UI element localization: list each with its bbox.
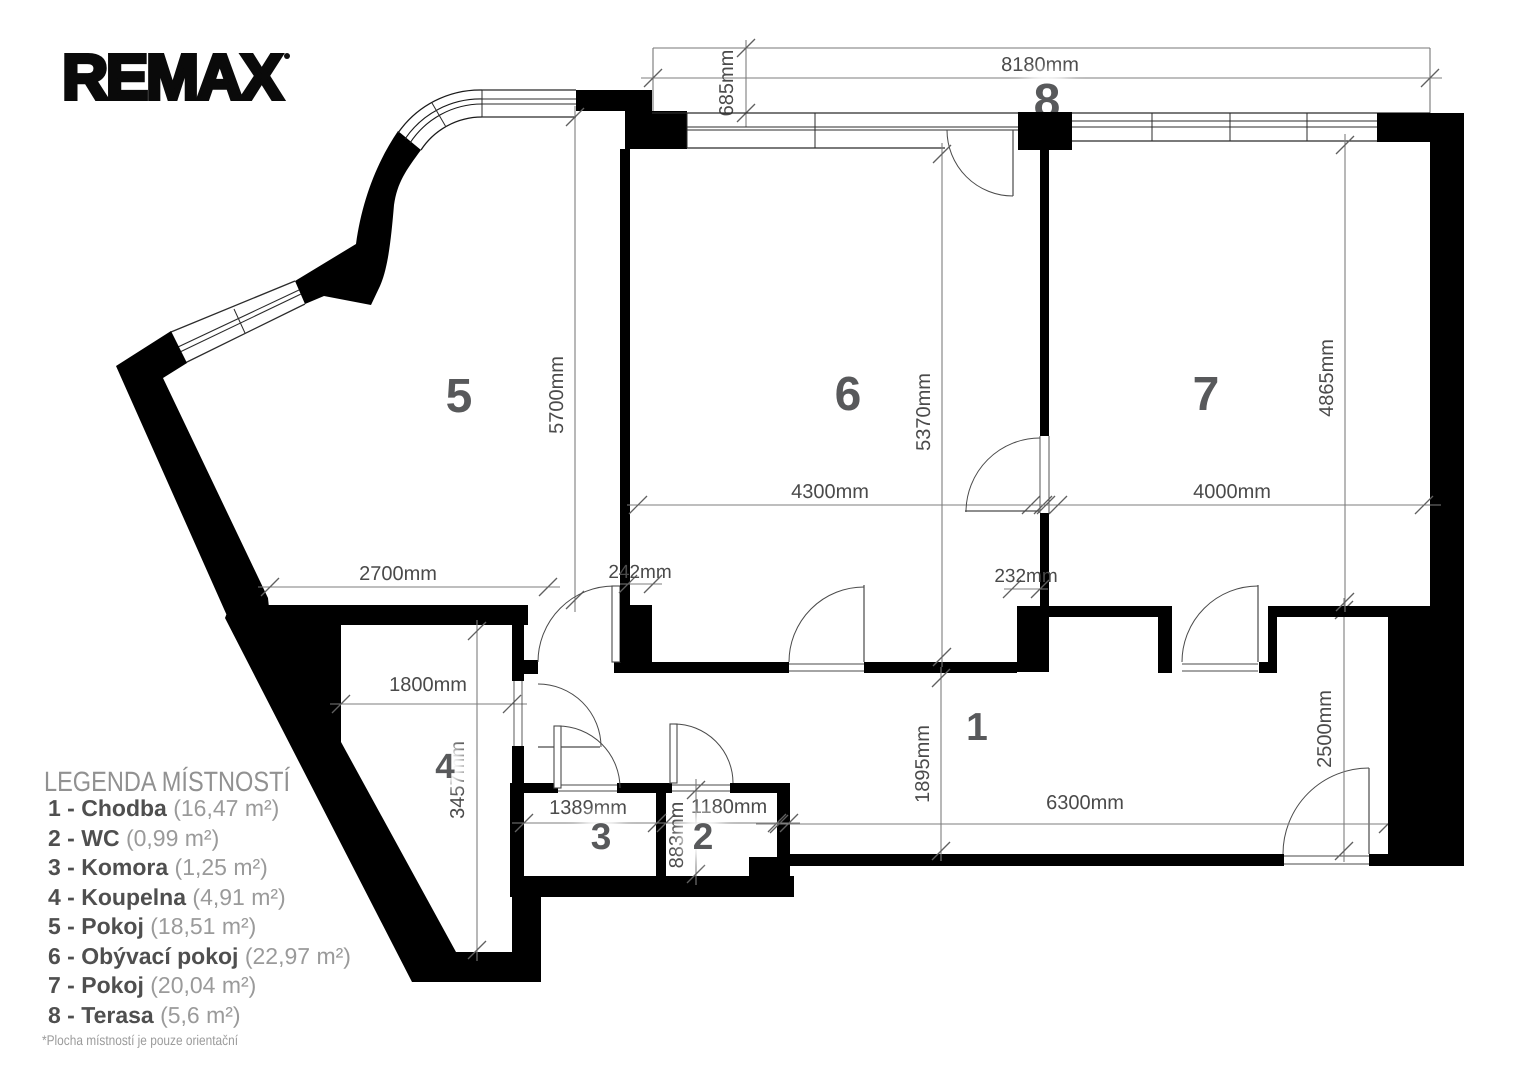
svg-text:4000mm: 4000mm bbox=[1193, 481, 1271, 503]
svg-text:3: 3 bbox=[591, 816, 612, 857]
svg-text:2 - WC (0,99 m²): 2 - WC (0,99 m²) bbox=[48, 825, 219, 851]
svg-text:LEGENDA MÍSTNOSTÍ: LEGENDA MÍSTNOSTÍ bbox=[44, 766, 290, 797]
svg-text:REMAX: REMAX bbox=[62, 41, 283, 113]
svg-text:6: 6 bbox=[835, 368, 862, 421]
svg-text:2: 2 bbox=[693, 816, 714, 857]
svg-text:4300mm: 4300mm bbox=[791, 481, 869, 503]
svg-text:6 - Obývací pokoj (22,97 m²): 6 - Obývací pokoj (22,97 m²) bbox=[48, 943, 351, 969]
svg-text:1895mm: 1895mm bbox=[912, 725, 934, 803]
svg-text:4 - Koupelna (4,91 m²): 4 - Koupelna (4,91 m²) bbox=[48, 884, 286, 910]
svg-text:2700mm: 2700mm bbox=[359, 563, 437, 585]
svg-text:1: 1 bbox=[966, 706, 988, 749]
svg-text:4: 4 bbox=[435, 747, 455, 786]
svg-text:*Plocha místností je pouze ori: *Plocha místností je pouze orientační bbox=[42, 1032, 238, 1048]
svg-text:5370mm: 5370mm bbox=[913, 373, 935, 451]
svg-text:1389mm: 1389mm bbox=[549, 797, 627, 819]
svg-text:7: 7 bbox=[1193, 368, 1220, 421]
svg-text:8 - Terasa (5,6 m²): 8 - Terasa (5,6 m²) bbox=[48, 1002, 241, 1028]
svg-text:4865mm: 4865mm bbox=[1316, 339, 1338, 417]
svg-text:7 - Pokoj (20,04 m²): 7 - Pokoj (20,04 m²) bbox=[48, 972, 256, 998]
svg-text:5: 5 bbox=[446, 370, 473, 423]
svg-text:232mm: 232mm bbox=[994, 566, 1057, 587]
svg-text:1 - Chodba (16,47 m²): 1 - Chodba (16,47 m²) bbox=[48, 795, 279, 821]
svg-text:6300mm: 6300mm bbox=[1046, 792, 1124, 814]
svg-text:5700mm: 5700mm bbox=[546, 356, 568, 434]
svg-text:2500mm: 2500mm bbox=[1314, 690, 1336, 768]
svg-text:1800mm: 1800mm bbox=[389, 674, 467, 696]
svg-text:685mm: 685mm bbox=[716, 50, 738, 117]
svg-text:3 - Komora (1,25 m²): 3 - Komora (1,25 m²) bbox=[48, 854, 268, 880]
svg-text:242mm: 242mm bbox=[608, 562, 671, 583]
svg-text:5 - Pokoj (18,51 m²): 5 - Pokoj (18,51 m²) bbox=[48, 913, 256, 939]
